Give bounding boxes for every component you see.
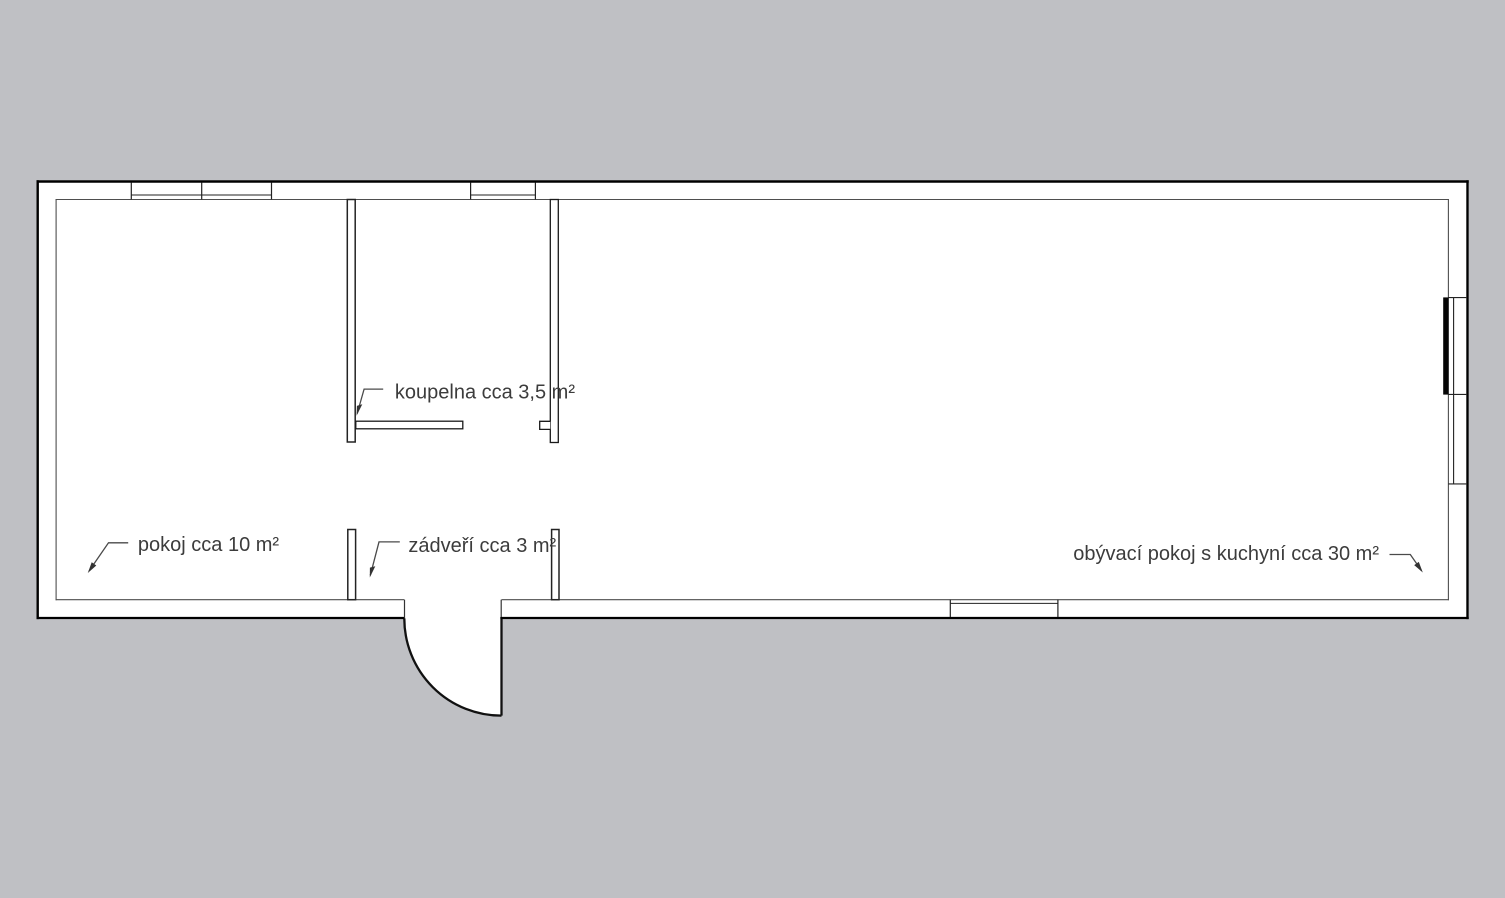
svg-text:koupelna cca 3,5 m²: koupelna cca 3,5 m² <box>395 381 575 403</box>
svg-text:obývací pokoj s kuchyní cca 30: obývací pokoj s kuchyní cca 30 m² <box>1073 543 1379 565</box>
svg-text:pokoj cca 10 m²: pokoj cca 10 m² <box>138 534 280 556</box>
svg-text:zádveří cca 3 m²: zádveří cca 3 m² <box>408 535 556 557</box>
